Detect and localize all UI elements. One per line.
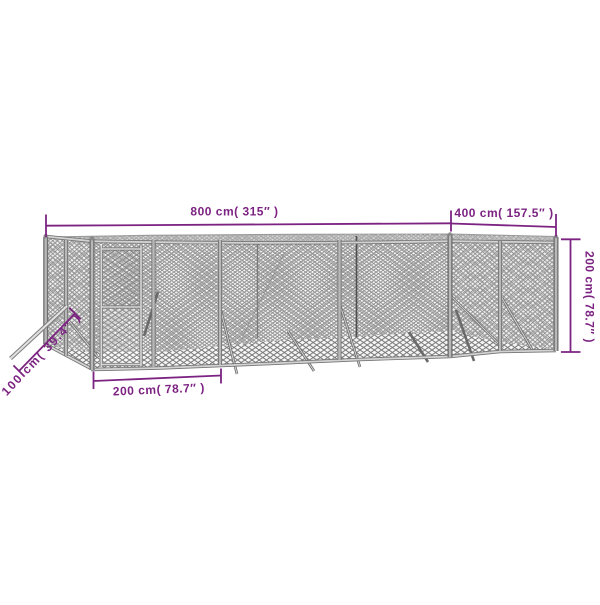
svg-text:800 cm( 315″ ): 800 cm( 315″ ) [190, 205, 278, 219]
svg-text:400 cm( 157.5″ ): 400 cm( 157.5″ ) [454, 206, 553, 220]
svg-text:200 cm( 78.7″ ): 200 cm( 78.7″ ) [583, 251, 597, 343]
